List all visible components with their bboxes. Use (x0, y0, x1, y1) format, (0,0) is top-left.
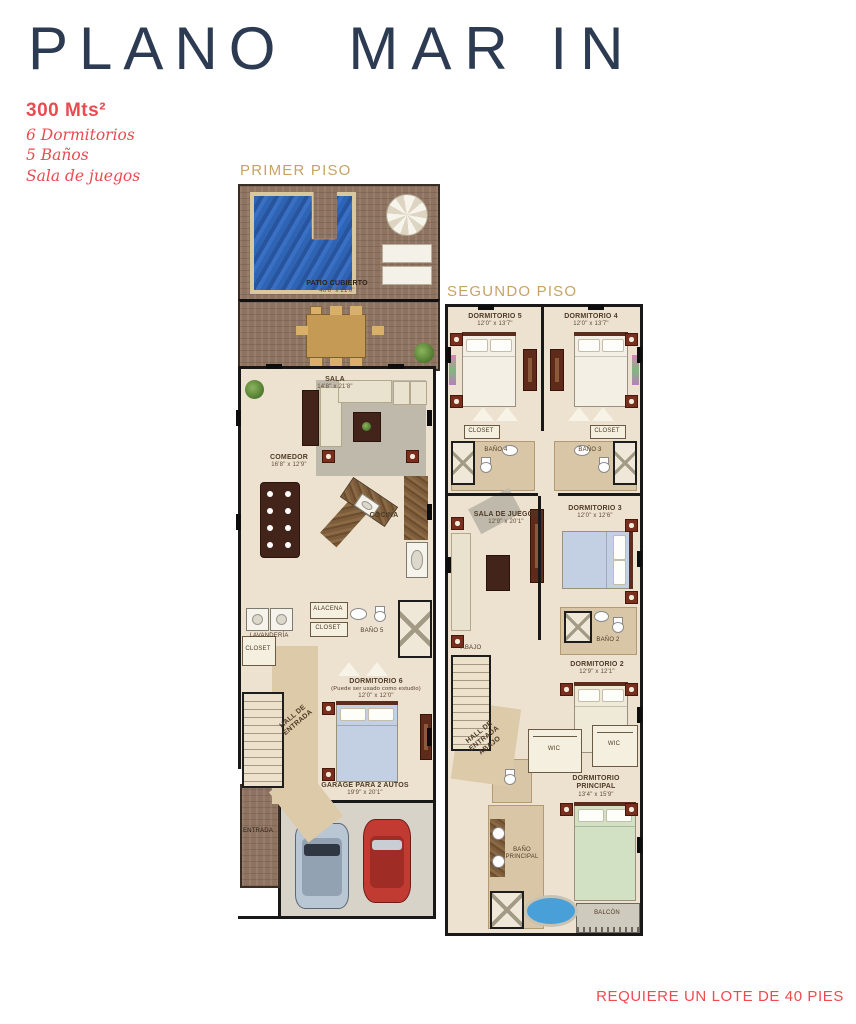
gameroom-table (486, 555, 510, 591)
patio-umbrella (386, 194, 428, 236)
nightstand (560, 803, 573, 816)
armchair (410, 381, 427, 405)
window (637, 347, 642, 363)
dryer (270, 608, 293, 631)
comedor-label: COMEDOR 16'8" x 12'9" (256, 454, 322, 470)
dorm6-label: DORMITORIO 6 (Puede ser usado como estud… (326, 678, 426, 701)
bath2-toilet (612, 617, 624, 633)
covered-patio (238, 299, 440, 371)
window (236, 514, 241, 530)
nightstand (625, 591, 638, 604)
nightstand (625, 519, 638, 532)
spec-gameroom: Sala de juegos (26, 166, 140, 186)
coffee-table (353, 412, 381, 442)
master-bed (574, 805, 636, 901)
lounge-chair (382, 244, 432, 263)
bath4-toilet (480, 457, 492, 473)
dorm3-bed (562, 531, 630, 589)
lot-requirement-note: REQUIERE UN LOTE DE 40 PIES (596, 988, 844, 1005)
floorplan-page: PLANOMAR IN 300 Mts² 6 Dormitorios 5 Bañ… (0, 0, 856, 1024)
outdoor-dining-table (306, 314, 366, 358)
patio-label: PATIO CUBIERTO 40'0" x 21'0" (282, 280, 392, 296)
closet-box: Closet (590, 425, 626, 439)
side-table (406, 450, 419, 463)
nightstand (625, 683, 638, 696)
closet-door (366, 662, 388, 676)
closet-door (592, 407, 614, 421)
window (388, 364, 404, 369)
table-plant (362, 422, 371, 431)
dining-table (260, 482, 300, 558)
washer (246, 608, 269, 631)
armchair (393, 381, 410, 405)
bath2-sink (594, 611, 609, 622)
page-title-right: MAR IN (348, 15, 636, 82)
pantry-box: Alacena (310, 602, 348, 619)
kitchen-counter (404, 476, 428, 540)
dorm4-label: DORMITORIO 4 12'0" x 13'7" (552, 313, 630, 329)
dorm6-bed (336, 704, 398, 782)
floor1-heading: PRIMER PISO (240, 162, 352, 179)
bath4-label: Baño 4 (476, 447, 516, 454)
red-car (363, 819, 411, 903)
bath3-label: Baño 3 (570, 447, 610, 454)
wic-right: WIC (592, 725, 638, 767)
nightstand (560, 683, 573, 696)
window (427, 504, 432, 520)
refrigerator (406, 542, 428, 578)
bath5-shower (398, 600, 432, 658)
nightstand (625, 803, 638, 816)
hall-closet: Closet (242, 636, 276, 666)
window (637, 707, 642, 723)
pool-water (254, 196, 352, 290)
laundry-label: Lavandería (242, 633, 296, 640)
wall (448, 493, 538, 496)
window (637, 551, 642, 567)
bath3-toilet (598, 457, 610, 473)
nightstand (450, 333, 463, 346)
spec-list: 300 Mts² 6 Dormitorios 5 Baños Sala de j… (26, 100, 140, 186)
plant (414, 343, 434, 363)
dresser (523, 349, 537, 391)
closet-box: Closet (464, 425, 500, 439)
closet-box: Closet (310, 622, 348, 637)
dorm5-bed (462, 335, 516, 407)
nightstand (625, 395, 638, 408)
side-table (322, 450, 335, 463)
master-label: DORMITORIO PRINCIPAL 13'4" x 15'9" (552, 775, 640, 799)
bath3-shower (613, 441, 637, 485)
spec-area: 300 Mts² (26, 100, 140, 122)
wall (558, 493, 640, 496)
page-title: PLANOMAR IN (28, 14, 636, 83)
dorm3-label: DORMITORIO 3 12'0" x 12'6" (556, 505, 634, 521)
bath4-shower (451, 441, 475, 485)
dorm2-label: DORMITORIO 2 12'9" x 12'1" (558, 661, 636, 677)
master-sink (492, 827, 505, 840)
nightstand (450, 395, 463, 408)
cocina-label: COCINA (356, 512, 412, 520)
window (637, 837, 642, 853)
window (446, 347, 451, 363)
dorm5-label: DORMITORIO 5 12'0" x 13'7" (456, 313, 534, 329)
sala-label: SALA 14'8" x 21'8" (300, 376, 370, 392)
bath2-label: Baño 2 (588, 637, 628, 644)
window (236, 410, 241, 426)
floor1-plan: PATIO CUBIERTO 40'0" x 21'0" SALA 14'8" … (238, 184, 436, 916)
outdoor-chairs (310, 306, 322, 315)
bath5-label: Baño 5 (350, 628, 394, 635)
stairs-down-label: Abajo (454, 645, 488, 652)
gameroom-label: SALA DE JUEGOS 12'9" x 20'1" (462, 511, 550, 527)
wall (541, 307, 544, 431)
nightstand (322, 768, 335, 781)
spec-baths: 5 Baños (26, 145, 140, 165)
floor2-plan: DORMITORIO 5 12'0" x 13'7" DORMITORIO 4 … (445, 304, 643, 936)
floor2-heading: SEGUNDO PISO (447, 283, 577, 300)
nightstand (625, 333, 638, 346)
window (427, 728, 432, 746)
dresser (550, 349, 564, 391)
window (446, 557, 451, 573)
closet-door (472, 407, 494, 421)
closet-door (568, 407, 590, 421)
master-tub (524, 895, 578, 927)
closet-door (496, 407, 518, 421)
bath5-toilet (374, 606, 386, 622)
spec-bedrooms: 6 Dormitorios (26, 125, 140, 145)
window (478, 305, 494, 310)
gameroom-sofa (451, 533, 471, 631)
wic-center: WIC (528, 729, 582, 773)
plant (245, 380, 264, 399)
closet-door (338, 662, 360, 676)
dorm4-bed (574, 335, 628, 407)
garage-label: GARAGE PARA 2 AUTOS 19'9" x 20'1" (300, 782, 430, 798)
window (266, 364, 282, 369)
master-shower (490, 891, 524, 929)
dining-plates (267, 491, 273, 497)
tv-console (302, 390, 319, 446)
master-bath-label: Baño Principal (500, 847, 544, 861)
balcony: Balcón (576, 903, 640, 933)
window (588, 305, 604, 310)
page-title-left: PLANO (28, 15, 286, 82)
window (427, 410, 432, 426)
pool-deck (250, 192, 356, 294)
bath5-sink (350, 608, 367, 620)
powder-toilet (504, 769, 516, 785)
